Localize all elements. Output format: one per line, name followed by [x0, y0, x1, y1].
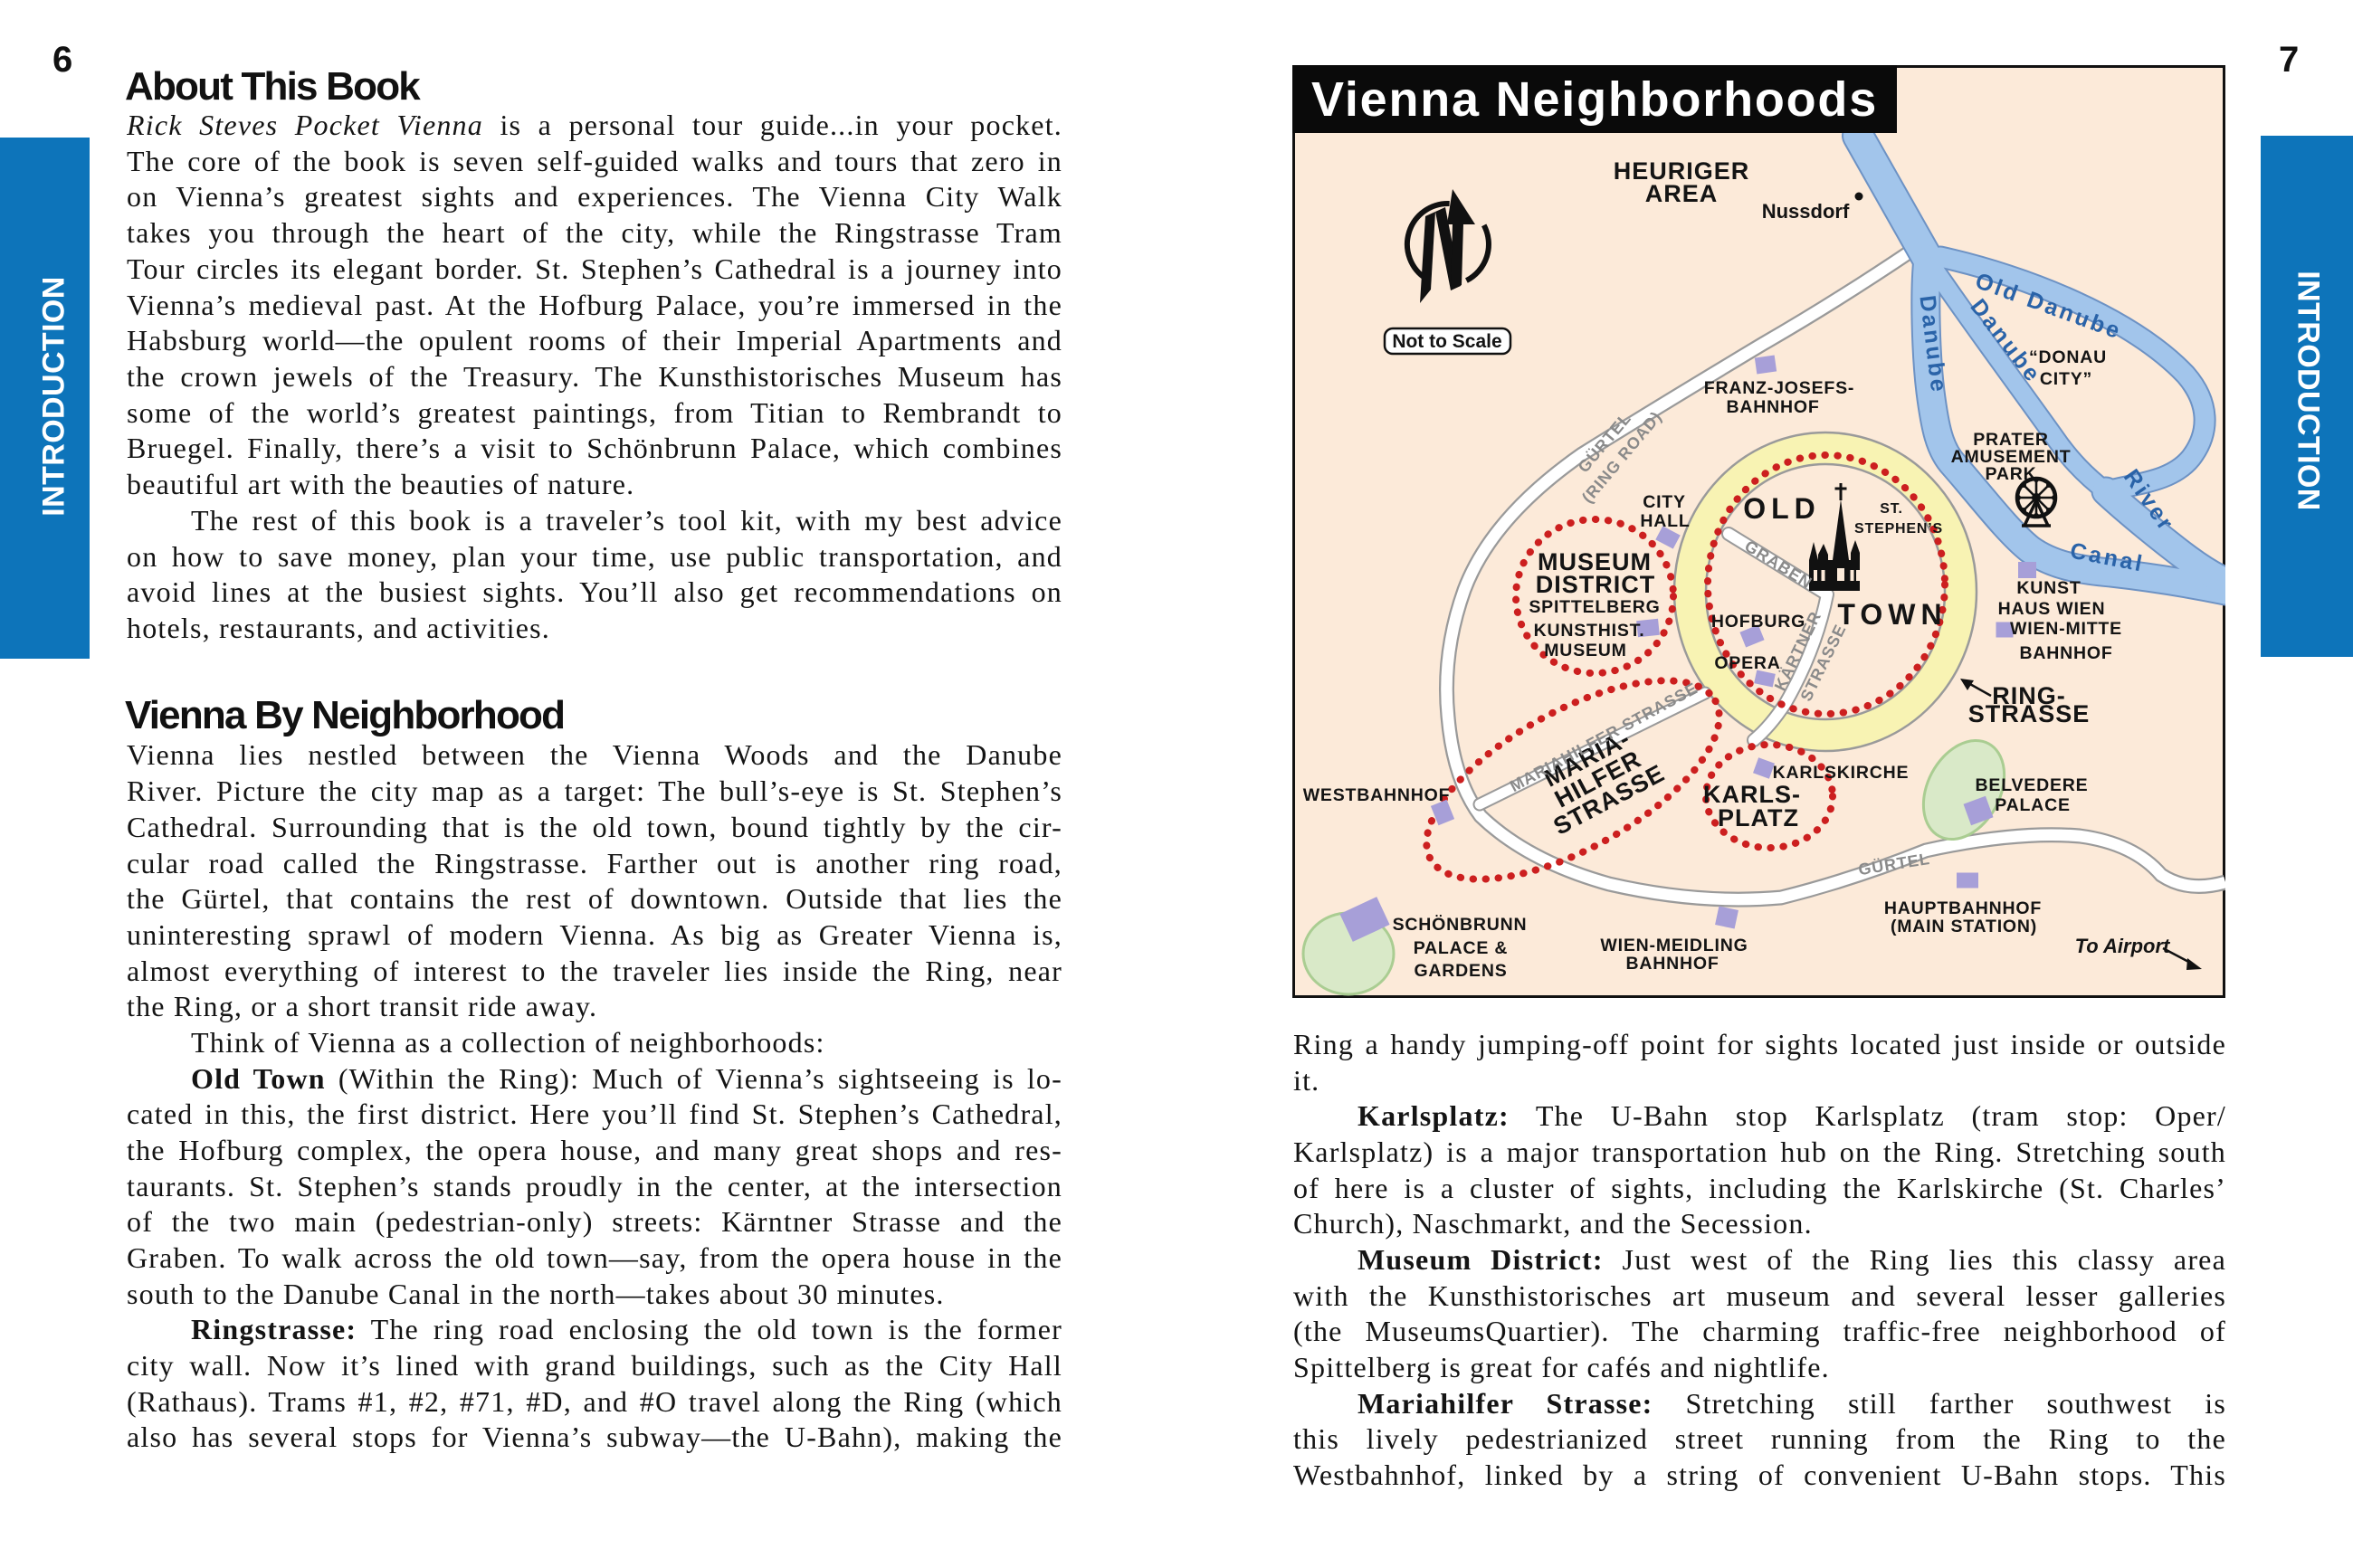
svg-text:(MAIN STATION): (MAIN STATION): [1891, 917, 2037, 936]
svg-text:PALACE &: PALACE &: [1414, 938, 1509, 958]
svg-text:BELVEDERE: BELVEDERE: [1976, 775, 2089, 795]
svg-text:PALACE: PALACE: [1995, 795, 2071, 815]
svg-text:ST.: ST.: [1880, 501, 1903, 517]
svg-text:To Airport: To Airport: [2075, 935, 2171, 957]
svg-text:BAHNHOF: BAHNHOF: [2019, 643, 2112, 663]
svg-text:GARDENS: GARDENS: [1414, 961, 1507, 981]
svg-text:OLD: OLD: [1743, 492, 1821, 525]
svg-text:MUSEUM: MUSEUM: [1544, 641, 1626, 660]
svg-text:KUNSTHIST.: KUNSTHIST.: [1534, 621, 1645, 641]
svg-text:STEPHEN’S: STEPHEN’S: [1854, 521, 1943, 537]
svg-text:HOFBURG: HOFBURG: [1711, 612, 1805, 632]
svg-text:PLATZ: PLATZ: [1718, 804, 1799, 832]
svg-text:STRASSE: STRASSE: [1968, 700, 2091, 727]
svg-text:Not to Scale: Not to Scale: [1392, 331, 1501, 352]
svg-text:KUNST: KUNST: [2016, 578, 2081, 598]
svg-text:CITY: CITY: [1643, 492, 1686, 512]
svg-text:AREA: AREA: [1645, 180, 1719, 207]
svg-text:SPITTELBERG: SPITTELBERG: [1529, 597, 1660, 617]
svg-text:TOWN: TOWN: [1837, 598, 1947, 631]
svg-text:BAHNHOF: BAHNHOF: [1726, 397, 1819, 417]
svg-text:FRANZ-JOSEFS-: FRANZ-JOSEFS-: [1704, 378, 1854, 398]
svg-text:SCHÖNBRUNN: SCHÖNBRUNN: [1393, 914, 1528, 935]
svg-text:CITY”: CITY”: [2040, 369, 2092, 389]
svg-text:HALL: HALL: [1640, 511, 1690, 531]
svg-text:WESTBAHNHOF: WESTBAHNHOF: [1303, 785, 1451, 805]
svg-text:HAUS WIEN: HAUS WIEN: [1998, 599, 2106, 619]
svg-text:KARLSKIRCHE: KARLSKIRCHE: [1773, 763, 1910, 783]
svg-text:Vienna Neighborhoods: Vienna Neighborhoods: [1311, 72, 1878, 127]
svg-text:HAUPTBAHNHOF: HAUPTBAHNHOF: [1884, 898, 2042, 918]
svg-text:BAHNHOF: BAHNHOF: [1625, 954, 1719, 974]
svg-text:Nussdorf: Nussdorf: [1762, 200, 1850, 223]
svg-text:OPERA: OPERA: [1714, 653, 1780, 673]
svg-text:WIEN-MEIDLING: WIEN-MEIDLING: [1600, 936, 1748, 955]
svg-text:DISTRICT: DISTRICT: [1536, 571, 1656, 598]
svg-text:WIEN-MITTE: WIEN-MITTE: [2010, 619, 2122, 639]
